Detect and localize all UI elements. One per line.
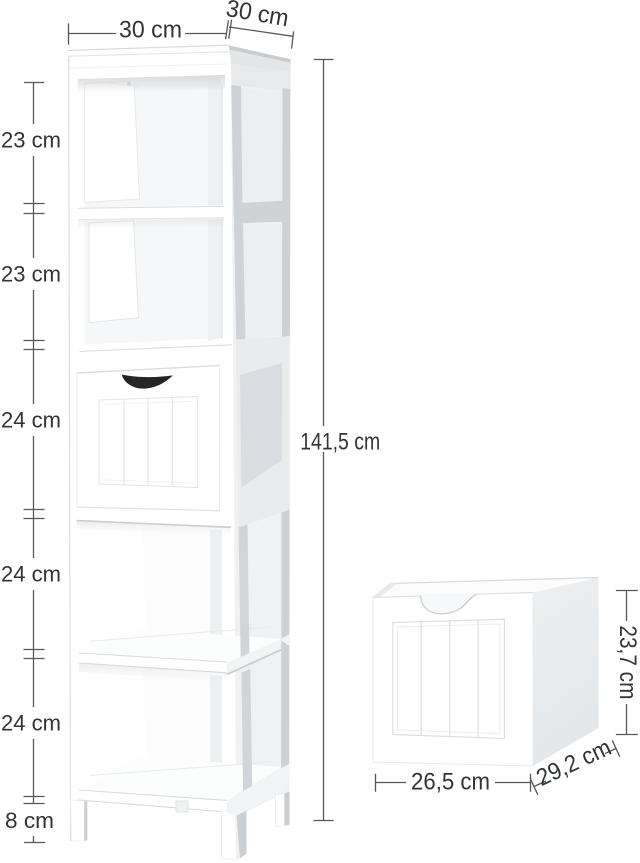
svg-text:26,5 cm: 26,5 cm [411,769,490,796]
svg-text:24 cm: 24 cm [1,711,61,736]
svg-text:30 cm: 30 cm [119,16,182,43]
svg-text:24 cm: 24 cm [1,408,61,433]
svg-text:8 cm: 8 cm [5,808,54,833]
svg-text:141,5 cm: 141,5 cm [300,428,380,455]
svg-text:24 cm: 24 cm [1,562,61,587]
svg-text:23,7 cm: 23,7 cm [614,625,640,699]
svg-text:23 cm: 23 cm [1,262,61,287]
svg-text:23 cm: 23 cm [1,128,61,153]
